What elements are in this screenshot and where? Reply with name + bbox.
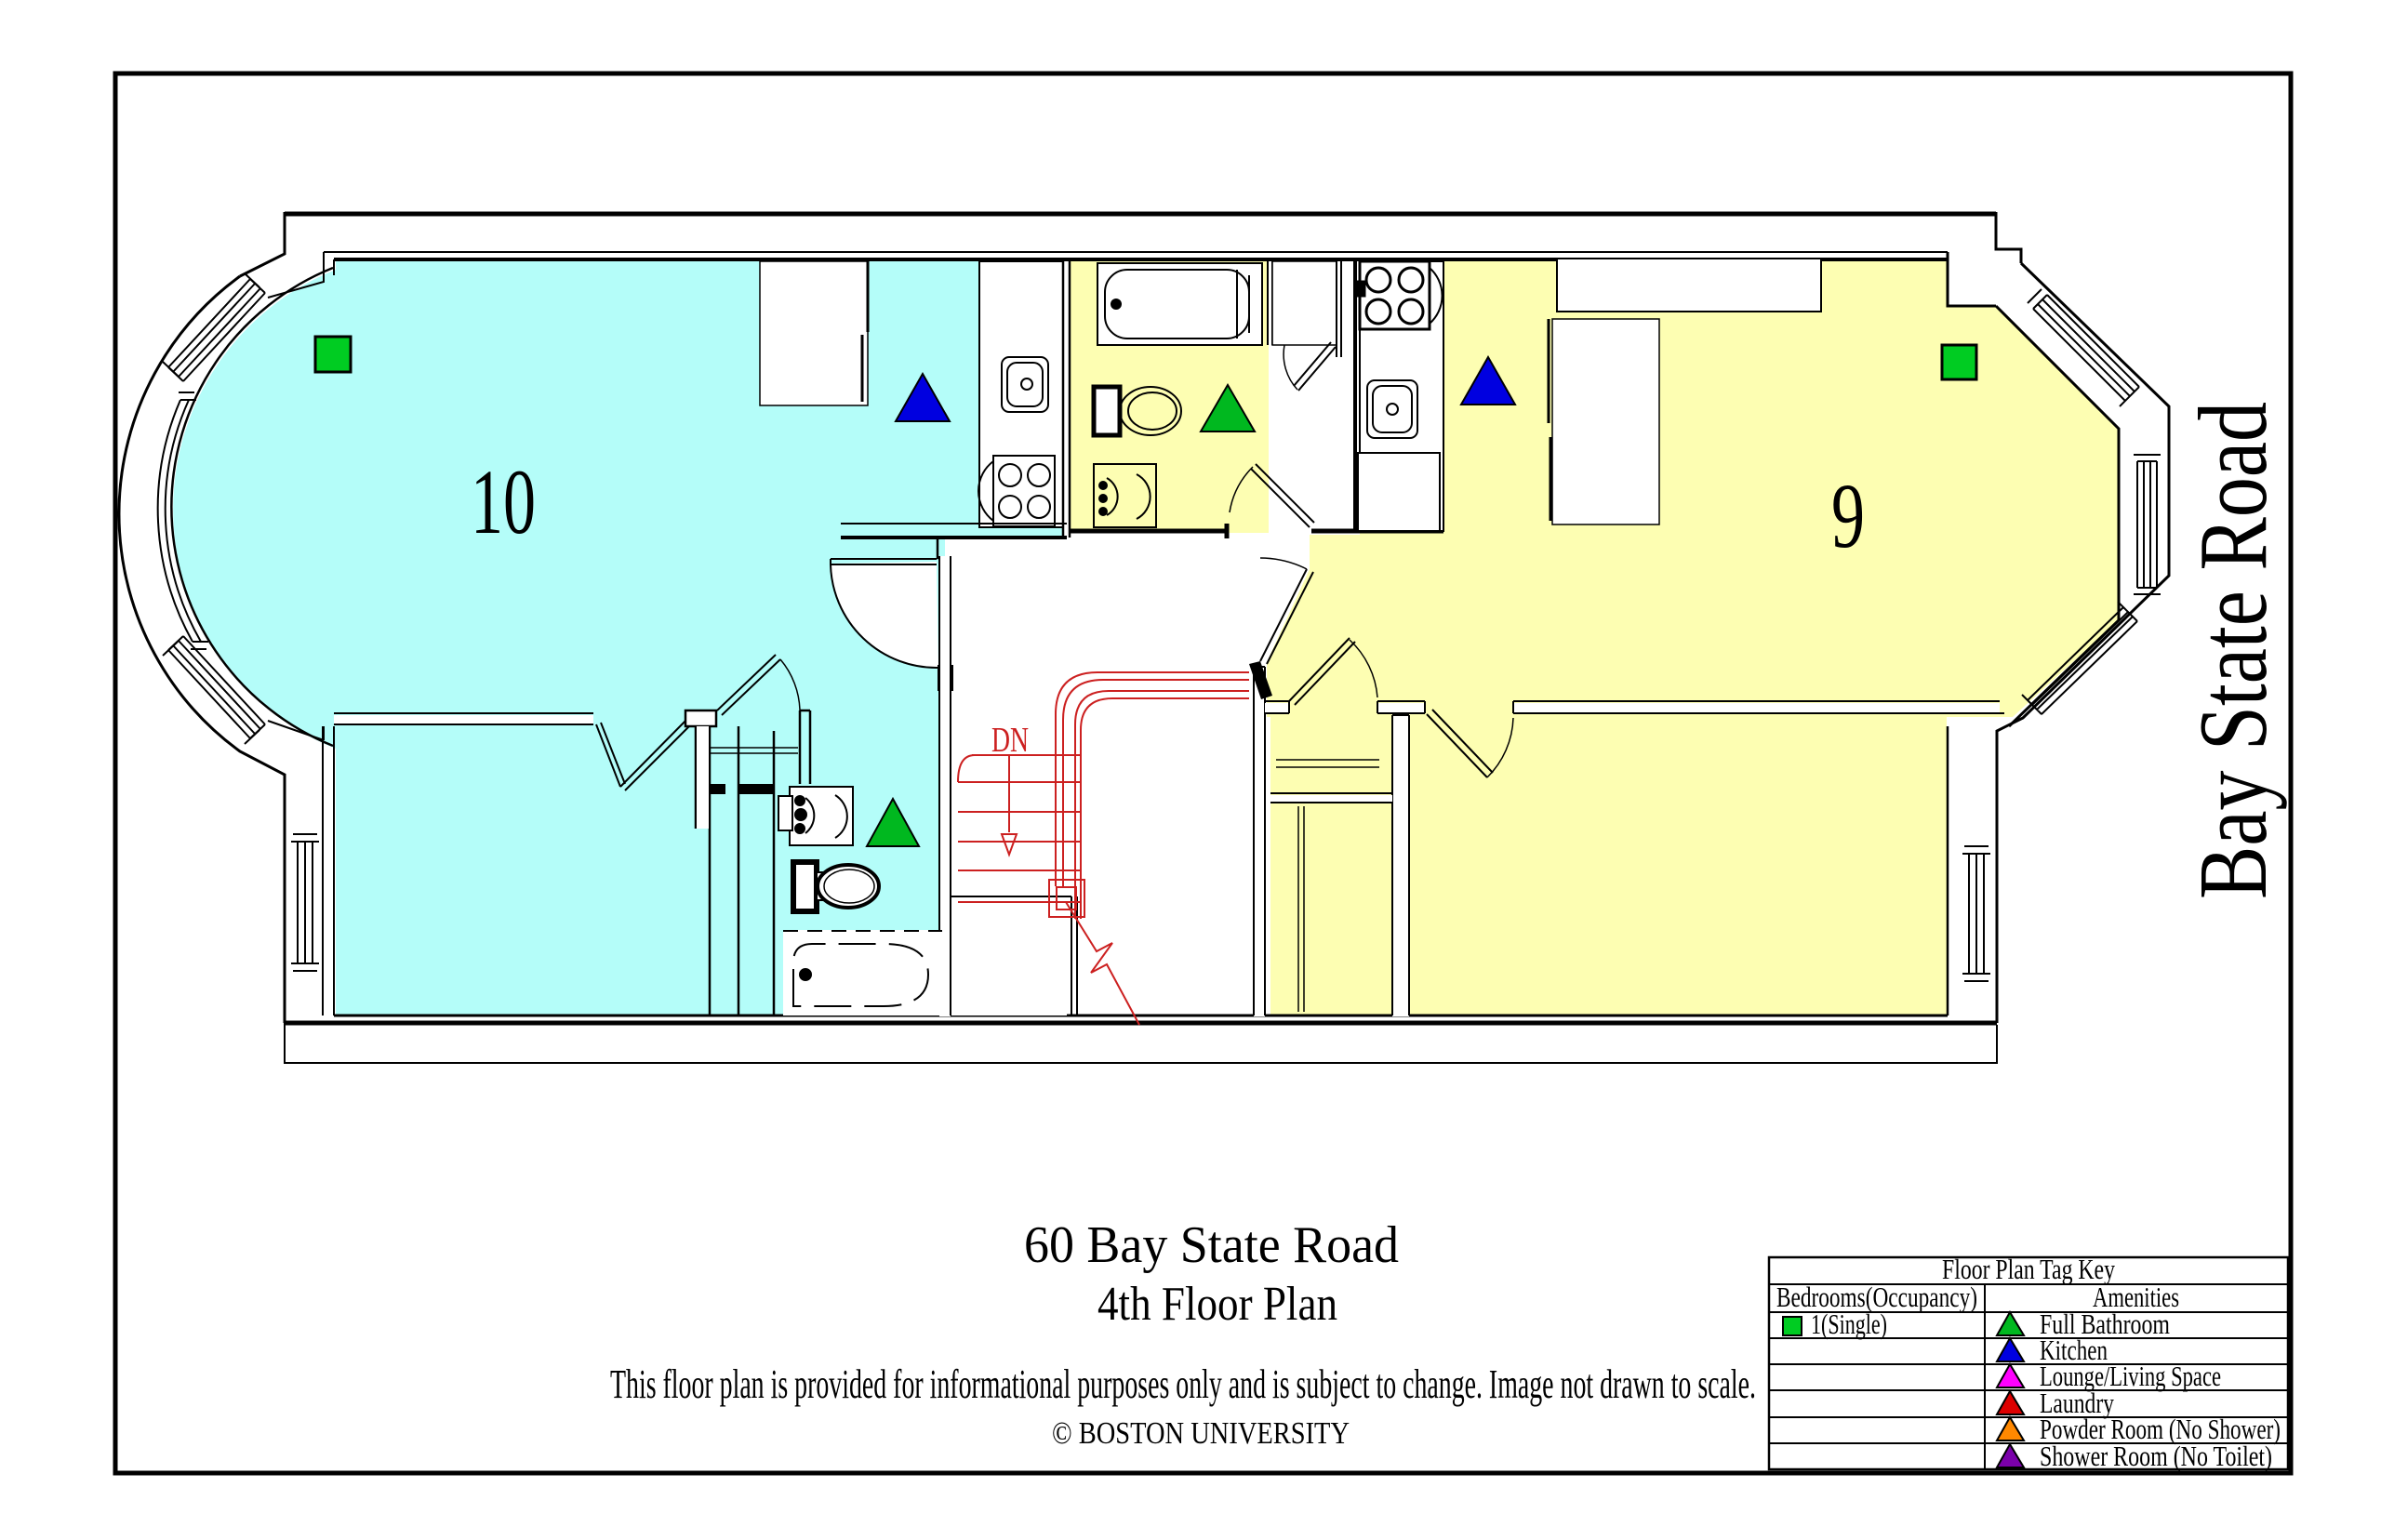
svg-text:Shower Room (No Toilet): Shower Room (No Toilet) — [2040, 1440, 2272, 1472]
svg-text:DN: DN — [991, 721, 1029, 760]
svg-text:4th Floor Plan: 4th Floor Plan — [1097, 1278, 1337, 1331]
svg-text:1(Single): 1(Single) — [1811, 1308, 1887, 1340]
svg-text:© BOSTON UNIVERSITY: © BOSTON UNIVERSITY — [1052, 1416, 1350, 1451]
svg-text:9: 9 — [1831, 464, 1865, 567]
svg-text:Bay State Road: Bay State Road — [2178, 402, 2287, 899]
svg-text:This floor plan is provided fo: This floor plan is provided for informat… — [610, 1361, 1756, 1407]
svg-text:60 Bay State Road: 60 Bay State Road — [1024, 1216, 1399, 1274]
svg-text:10: 10 — [471, 450, 536, 553]
